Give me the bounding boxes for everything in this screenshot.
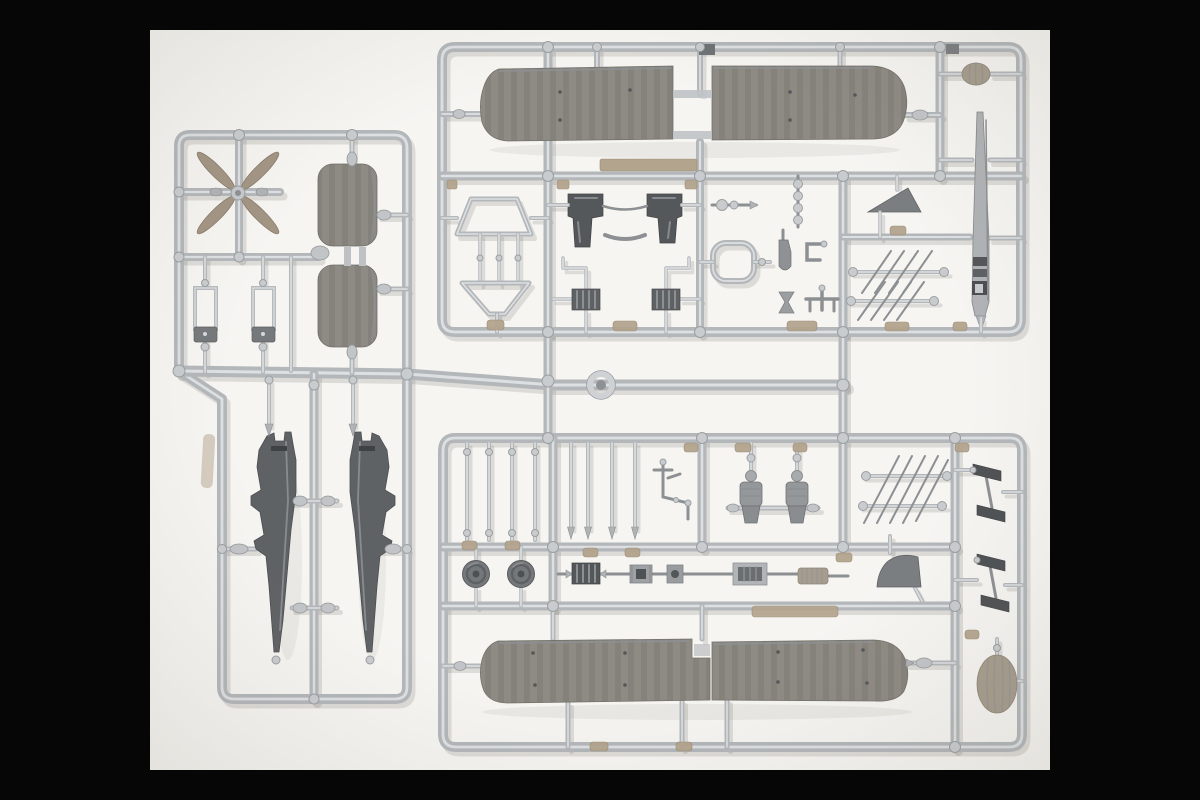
- vignette-overlay: [150, 30, 1050, 770]
- photo: [0, 0, 1200, 800]
- model-kit-sprue-photo: [0, 0, 1200, 800]
- letterboxed-photo-stage: [0, 0, 1200, 800]
